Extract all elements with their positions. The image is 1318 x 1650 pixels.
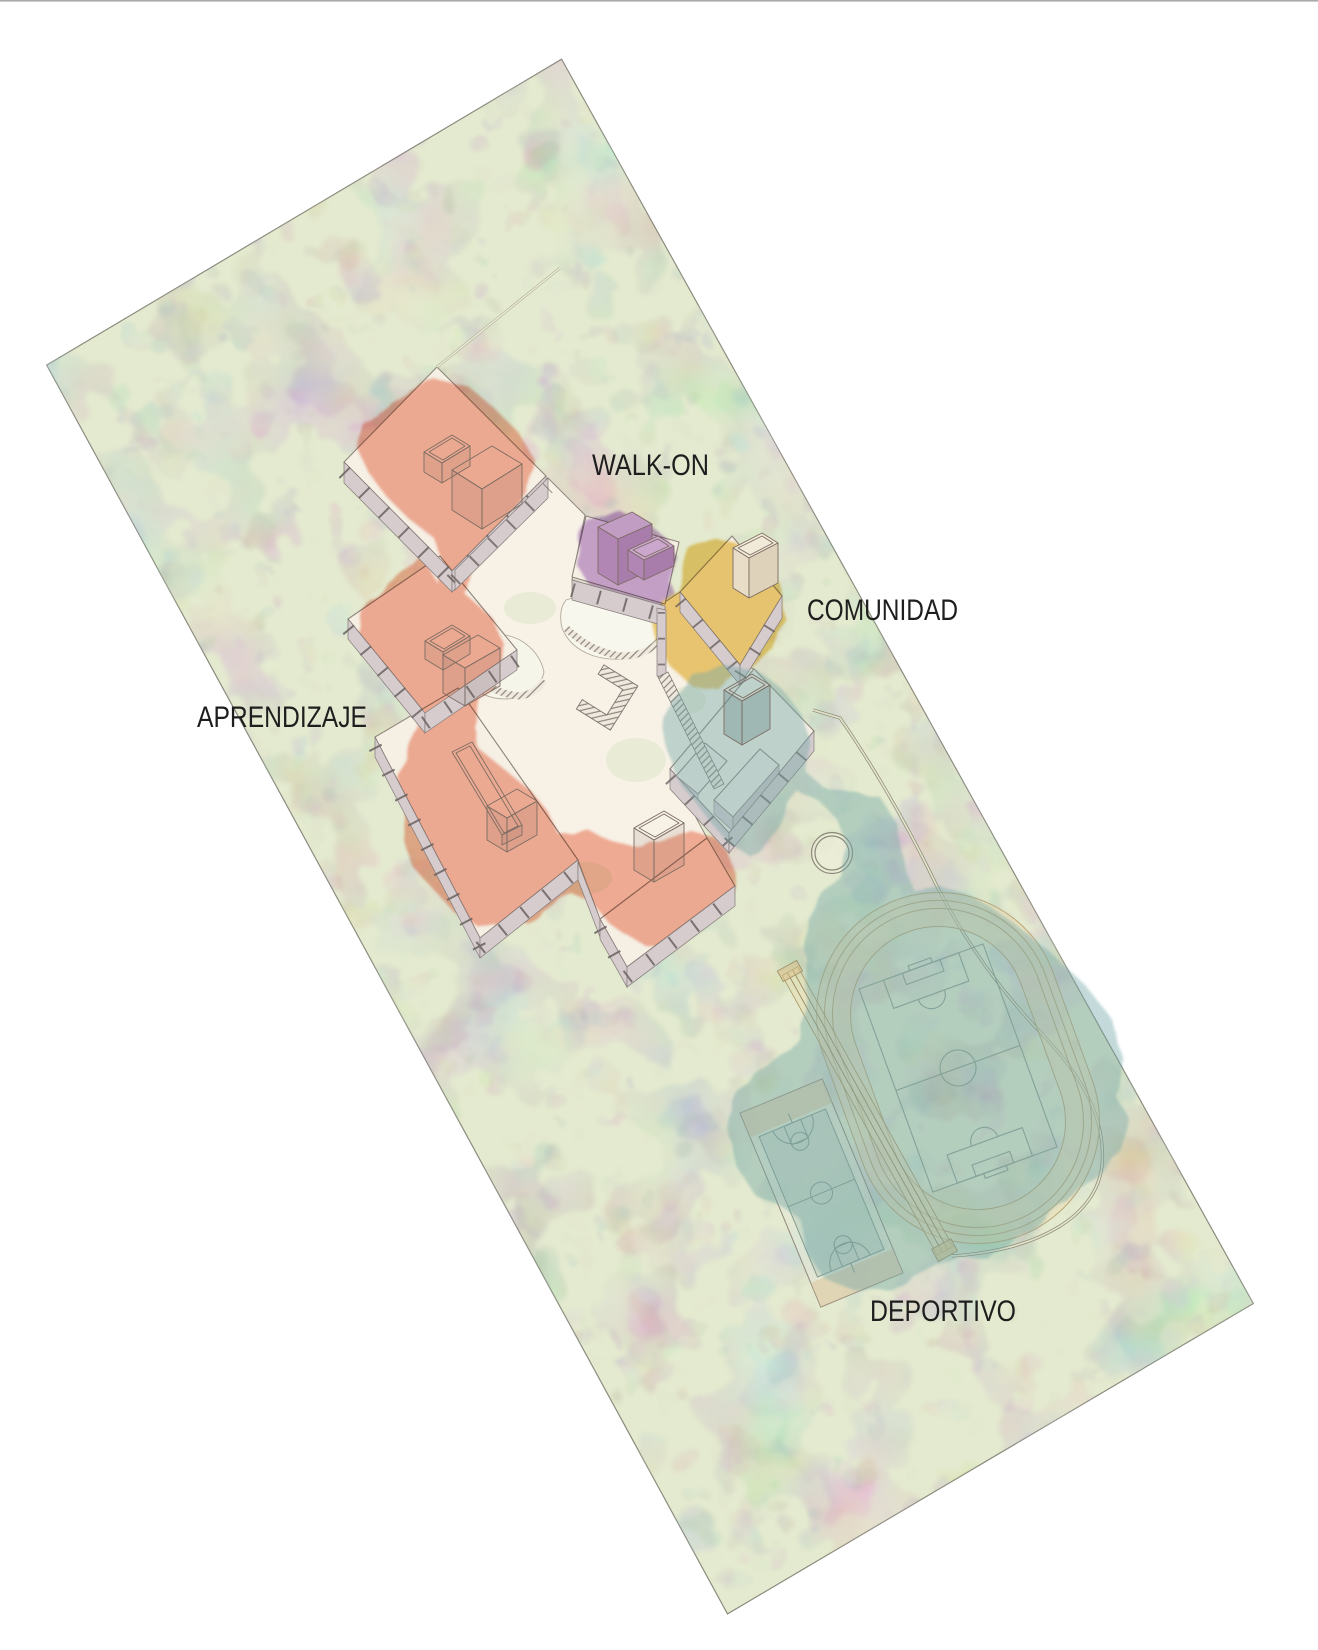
svg-text:WALK-ON: WALK-ON [592,449,709,482]
svg-text:APRENDIZAJE: APRENDIZAJE [197,701,367,734]
svg-text:DEPORTIVO: DEPORTIVO [870,1295,1016,1328]
svg-text:COMUNIDAD: COMUNIDAD [807,594,958,627]
